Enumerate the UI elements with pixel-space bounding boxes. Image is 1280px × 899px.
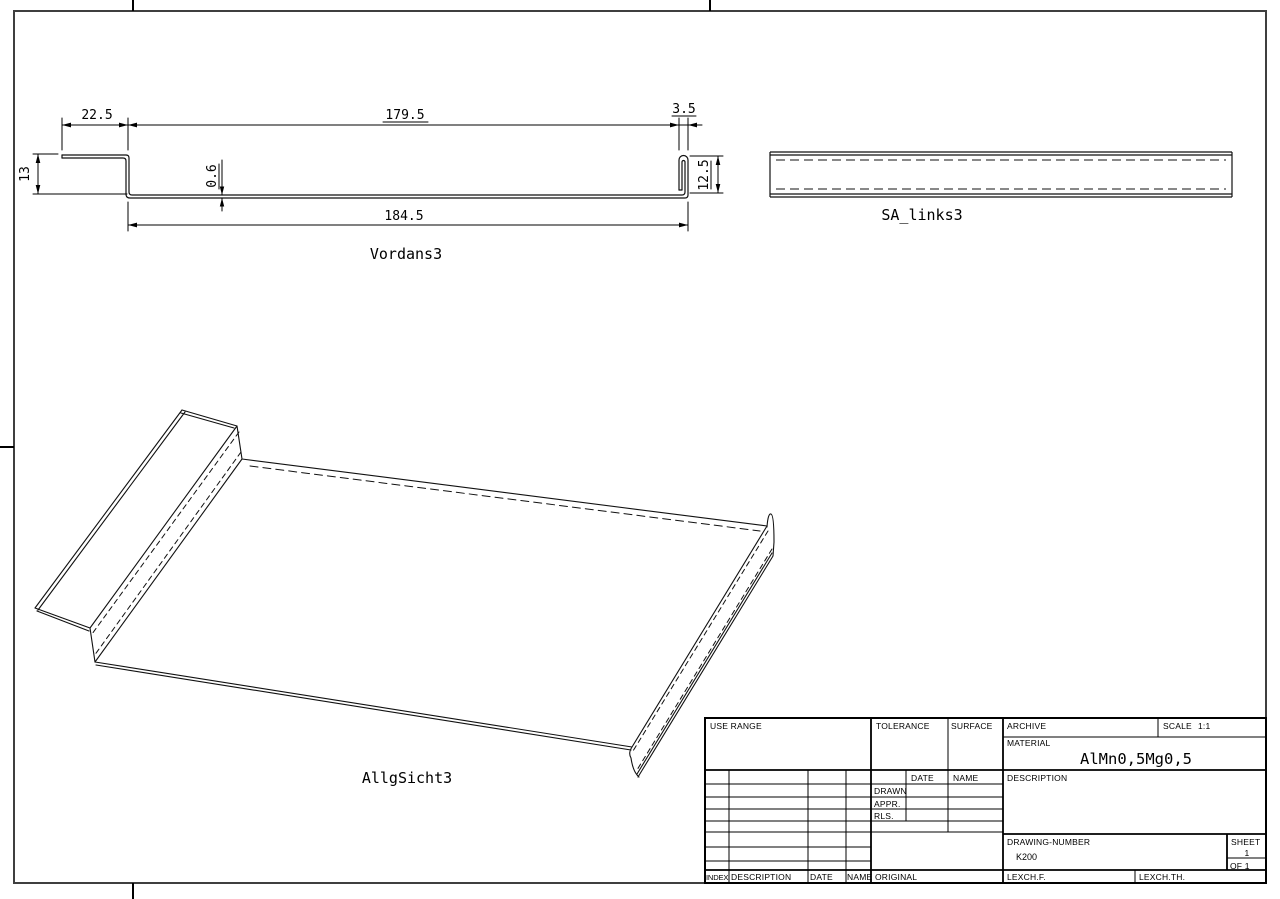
view-side: SA_links3 <box>770 152 1232 224</box>
iexchf-label: LEXCH.F. <box>1007 872 1046 882</box>
profile-edge-caps <box>62 155 682 190</box>
sheet-label: SHEET <box>1231 837 1260 847</box>
date-header: DATE <box>911 773 934 783</box>
dim-flange-width: 22.5 <box>81 108 112 123</box>
drawing-sheet: 22.5 179.5 3.5 184.5 13 0.6 12.5 Vordans… <box>0 0 1280 899</box>
name2-label: NAME <box>847 872 872 882</box>
of-value: OF 1 <box>1230 861 1250 871</box>
dim-right-height: 12.5 <box>697 159 712 190</box>
dim-thickness: 0.6 <box>205 164 220 187</box>
scale-value: 1:1 <box>1198 721 1210 731</box>
surface-label: SURFACE <box>951 721 993 731</box>
centering-marks <box>0 0 710 899</box>
view-front-section: 22.5 179.5 3.5 184.5 13 0.6 12.5 Vordans… <box>18 102 723 263</box>
use-range-label: USE RANGE <box>710 721 762 731</box>
material-value: AlMn0,5Mg0,5 <box>1080 750 1192 768</box>
tolerance-label: TOLERANCE <box>876 721 930 731</box>
dim-hem-width: 3.5 <box>672 102 695 117</box>
page-border <box>0 0 1266 899</box>
cad-drawing-canvas: 22.5 179.5 3.5 184.5 13 0.6 12.5 Vordans… <box>0 0 1280 899</box>
view-label-side: SA_links3 <box>881 206 962 224</box>
scale-label: SCALE <box>1163 721 1192 731</box>
iexchth-label: LEXCH.TH. <box>1139 872 1185 882</box>
side-view-hidden-lines <box>776 160 1226 189</box>
side-view-outline <box>770 152 1232 197</box>
dim-base-length: 184.5 <box>384 209 423 224</box>
iso-part-outline <box>35 410 774 777</box>
drawn-label: DRAWN <box>874 786 907 796</box>
drawing-number-label: DRAWING-NUMBER <box>1007 837 1090 847</box>
title-block: USE RANGE TOLERANCE SURFACE ARCHIVE SCAL… <box>705 718 1266 883</box>
original-label: ORIGINAL <box>875 872 917 882</box>
profile-outer-contour <box>62 155 685 195</box>
profile-inner-contour <box>62 156 688 199</box>
sheet-value: 1 <box>1245 848 1250 858</box>
view-iso: AllgSicht3 <box>35 410 774 787</box>
title-block-frame <box>705 718 1266 883</box>
rls-label: RLS. <box>874 811 894 821</box>
name-header: NAME <box>953 773 978 783</box>
date2-label: DATE <box>810 872 833 882</box>
index-label: INDEX <box>706 873 728 882</box>
material-label: MATERIAL <box>1007 738 1051 748</box>
archive-label: ARCHIVE <box>1007 721 1046 731</box>
title-block-major-lines <box>705 718 1266 883</box>
border-rect <box>14 11 1266 883</box>
dim-left-height: 13 <box>18 166 33 182</box>
dimension-lines <box>33 116 723 231</box>
drawing-number-value: K200 <box>1016 852 1037 862</box>
iso-bend-line-top <box>250 466 760 531</box>
title-block-minor-lines <box>705 718 1266 883</box>
view-label-iso: AllgSicht3 <box>362 769 452 787</box>
dim-top-length: 179.5 <box>385 108 424 123</box>
view-label-front: Vordans3 <box>370 245 442 263</box>
appr-label: APPR. <box>874 799 901 809</box>
dimension-arrowheads <box>36 123 721 228</box>
description-label: DESCRIPTION <box>1007 773 1067 783</box>
description2-label: DESCRIPTION <box>731 872 791 882</box>
